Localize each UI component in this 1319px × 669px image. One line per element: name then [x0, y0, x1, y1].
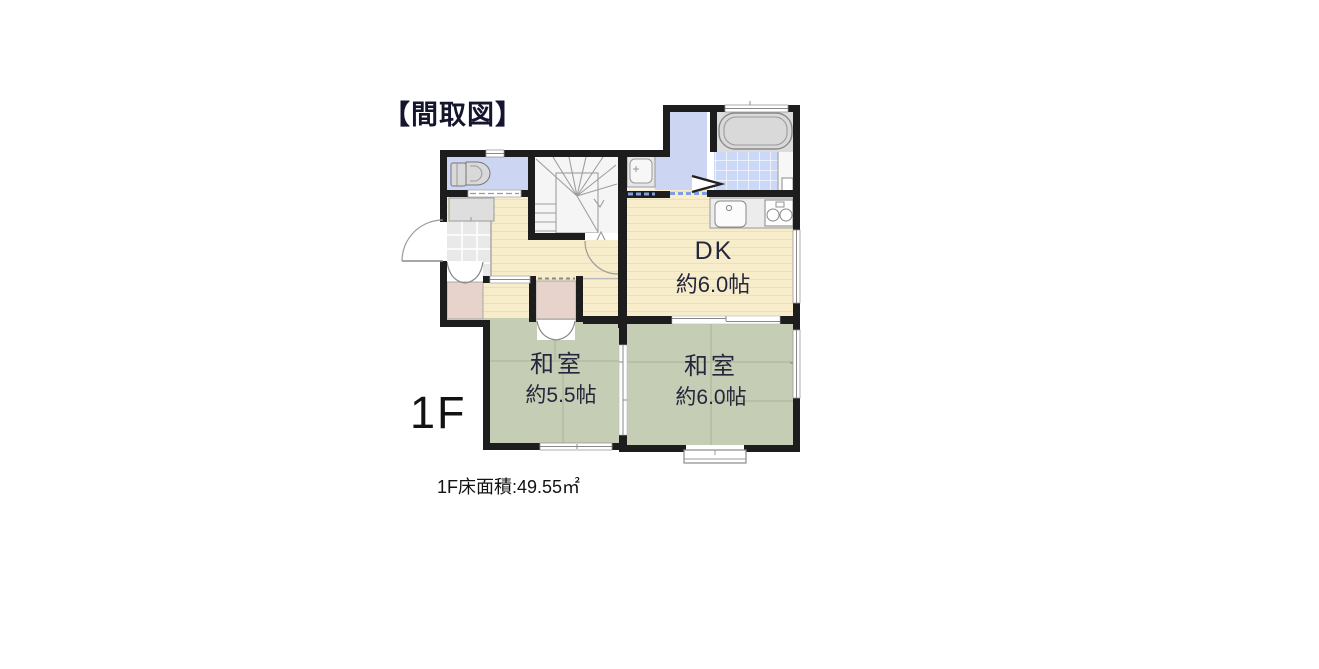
washbasin: [627, 156, 655, 187]
room-label-washitsu-5-5: 和室: [507, 353, 607, 377]
room-size-washitsu-6-0: 約6.0帖: [641, 387, 781, 408]
kitchen-sink: [715, 201, 746, 227]
entrance-closet: [447, 261, 483, 319]
entrance-door: [402, 220, 443, 261]
gas-stove: [765, 200, 793, 226]
washitsu-5-5-window: [540, 443, 612, 450]
floor-label: 1F: [410, 390, 467, 435]
toilet-sliding-door: [468, 190, 521, 197]
toilet: [451, 162, 490, 186]
toilet-window: [486, 150, 504, 157]
room-label-dk: DK: [664, 239, 764, 264]
washitsu-6-0-floor: [620, 320, 793, 447]
floor-plan-drawing: [0, 0, 1319, 669]
dk-washitsu-sliding-door: [672, 316, 780, 324]
page-title: 【間取図】: [383, 102, 523, 129]
floor-area-note: 1F床面積:49.55㎡: [437, 478, 580, 496]
bay-window: [684, 445, 746, 463]
kitchen-counter: [710, 198, 793, 228]
shoe-cabinet: [449, 198, 494, 221]
bathtub: [719, 113, 792, 149]
bath-window: [725, 101, 788, 112]
hall-washitsu-sliding-door: [490, 276, 530, 283]
floor-plan-page: 【間取図】 DK 約6.0帖 和室 約5.5帖 和室 約6.0帖 1F 1F床面…: [0, 0, 1319, 669]
room-size-washitsu-5-5: 約5.5帖: [491, 385, 631, 406]
room-size-dk: 約6.0帖: [643, 274, 783, 296]
room-label-washitsu-6-0: 和室: [661, 355, 761, 379]
bath-tile-floor: [714, 152, 778, 192]
dk-window: [793, 230, 800, 303]
